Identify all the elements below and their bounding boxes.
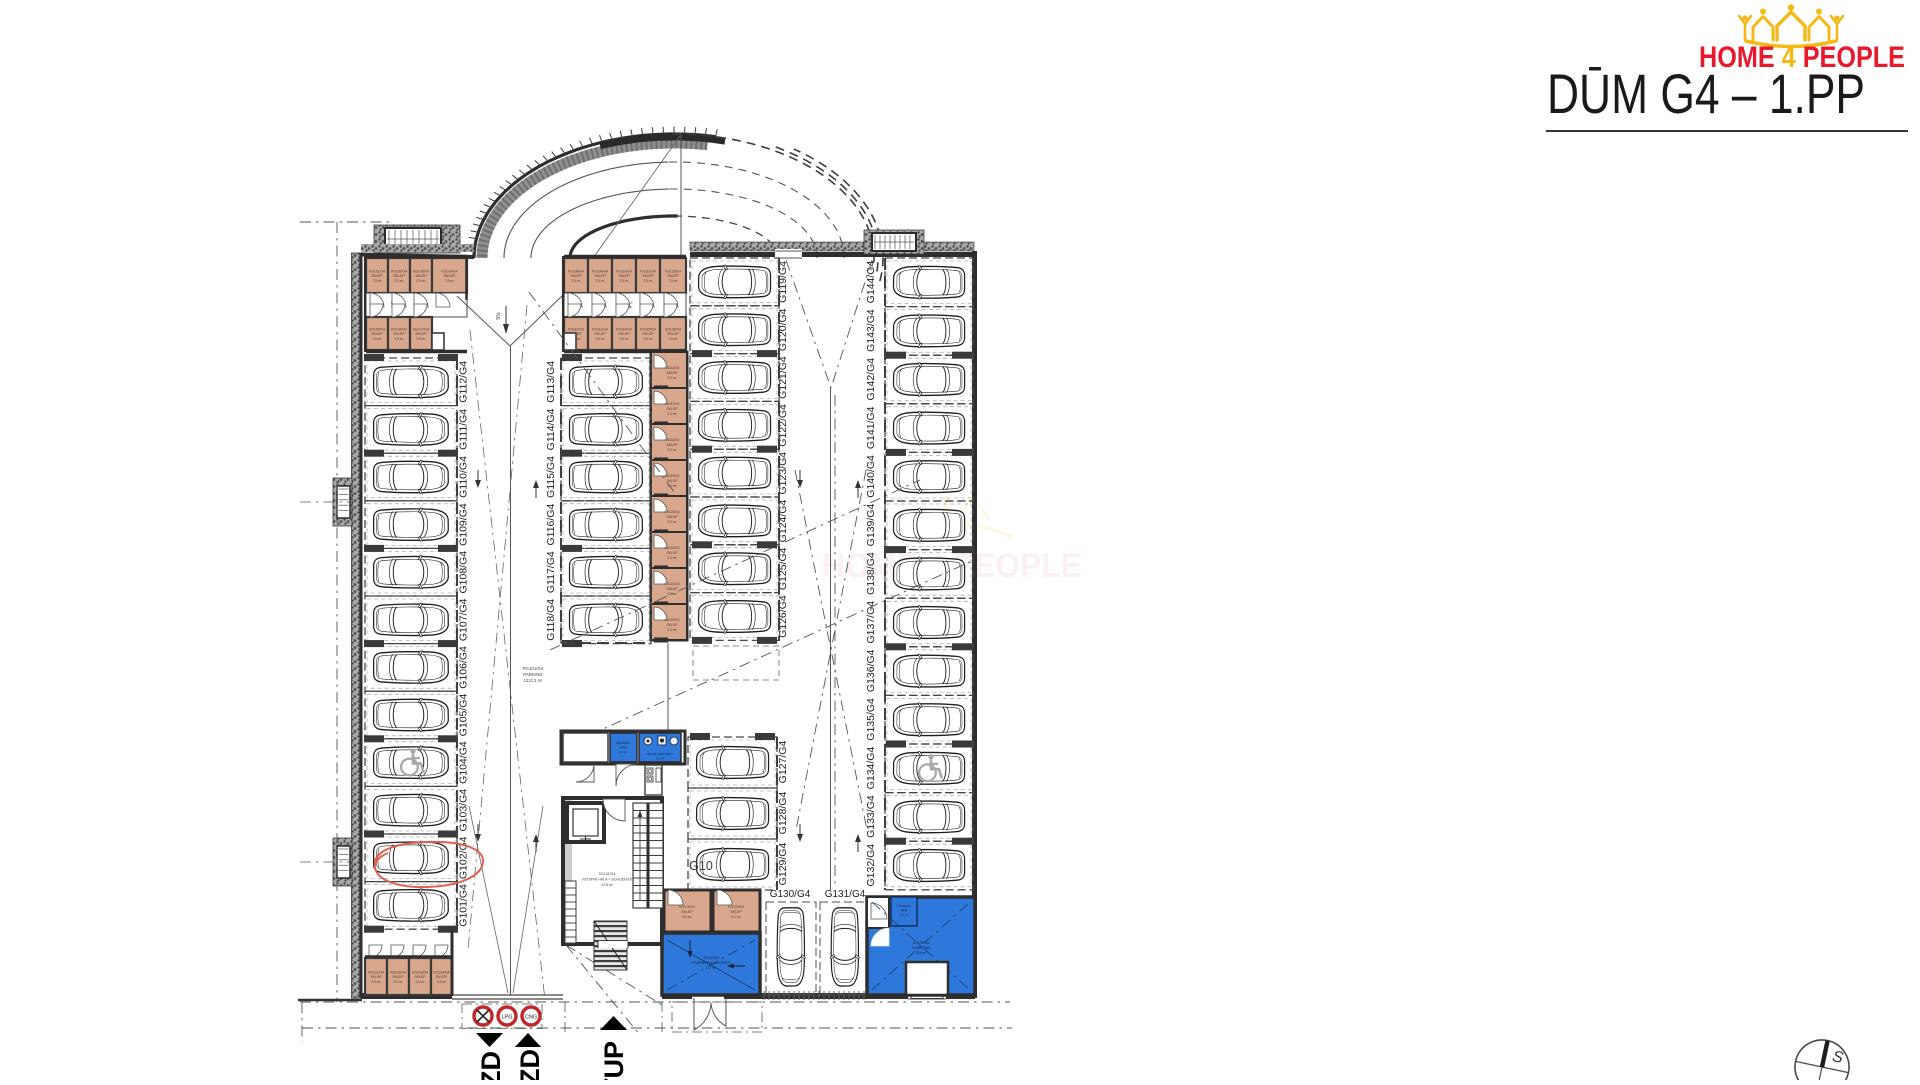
svg-text:VSTUPNÍ HALA + SCHODIŠTĚ: VSTUPNÍ HALA + SCHODIŠTĚ bbox=[582, 877, 633, 882]
svg-text:2.2 m²: 2.2 m² bbox=[667, 520, 676, 524]
svg-text:G141/G4: G141/G4 bbox=[865, 406, 877, 449]
svg-text:G117/G4: G117/G4 bbox=[545, 551, 557, 593]
svg-text:G139/G4: G139/G4 bbox=[865, 504, 877, 547]
svg-text:KG133/G4: KG133/G4 bbox=[412, 971, 428, 975]
svg-text:VÝMĚNÍKOVÁ MÍSTNOST: VÝMĚNÍKOVÁ MÍSTNOST bbox=[691, 960, 732, 965]
svg-text:G107/G4: G107/G4 bbox=[458, 598, 470, 641]
svg-text:SKLEP: SKLEP bbox=[642, 274, 654, 278]
svg-text:G113/G4: G113/G4 bbox=[545, 361, 557, 403]
svg-text:2.5 m²: 2.5 m² bbox=[415, 980, 424, 984]
svg-text:KG115/G4: KG115/G4 bbox=[640, 328, 656, 332]
svg-text:G108/G4: G108/G4 bbox=[458, 551, 470, 594]
svg-text:SKLEP: SKLEP bbox=[642, 332, 654, 336]
svg-text:KG131/G4: KG131/G4 bbox=[368, 971, 384, 975]
svg-text:1212.2 m²: 1212.2 m² bbox=[524, 678, 543, 683]
svg-text:G132/G4: G132/G4 bbox=[865, 844, 877, 887]
svg-text:SKLEP: SKLEP bbox=[667, 407, 679, 411]
svg-text:KG101/G4: KG101/G4 bbox=[369, 270, 385, 274]
svg-text:SKLEP: SKLEP bbox=[393, 332, 405, 336]
svg-text:17.7 m²: 17.7 m² bbox=[706, 966, 717, 970]
svg-text:CNG: CNG bbox=[525, 1015, 537, 1021]
svg-text:G106/G4: G106/G4 bbox=[458, 646, 470, 689]
svg-text:2.2 m²: 2.2 m² bbox=[667, 376, 676, 380]
svg-text:TG102/G4: TG102/G4 bbox=[703, 956, 719, 960]
svg-text:G110/G4: G110/G4 bbox=[458, 456, 470, 498]
svg-text:KG106/G4: KG106/G4 bbox=[391, 328, 407, 332]
svg-text:KG126/G4: KG126/G4 bbox=[665, 328, 681, 332]
svg-text:3.4 m²: 3.4 m² bbox=[619, 750, 628, 754]
svg-text:2.2 m²: 2.2 m² bbox=[667, 448, 676, 452]
svg-text:ÚKLID. MÍSTNOST: ÚKLID. MÍSTNOST bbox=[647, 751, 673, 756]
svg-text:KG125/G4: KG125/G4 bbox=[665, 270, 681, 274]
svg-text:SKLEP: SKLEP bbox=[618, 274, 630, 278]
svg-text:2.2 m²: 2.2 m² bbox=[667, 412, 676, 416]
svg-text:VSTUP: VSTUP bbox=[599, 1041, 629, 1080]
svg-text:2.5 m²: 2.5 m² bbox=[668, 337, 677, 341]
svg-text:G131/G4: G131/G4 bbox=[825, 889, 866, 900]
svg-text:KG114/G4: KG114/G4 bbox=[616, 328, 632, 332]
svg-text:SKLEP: SKLEP bbox=[444, 274, 456, 278]
svg-text:G135/G4: G135/G4 bbox=[865, 698, 877, 741]
svg-text:KOLÁRNA: KOLÁRNA bbox=[912, 946, 930, 950]
svg-text:G133/G4: G133/G4 bbox=[865, 795, 877, 838]
svg-text:2.5 m²: 2.5 m² bbox=[571, 279, 580, 283]
svg-text:KG109/G4: KG109/G4 bbox=[592, 270, 608, 274]
svg-text:G112/G4: G112/G4 bbox=[458, 361, 470, 403]
svg-text:2.5 m²: 2.5 m² bbox=[416, 279, 425, 283]
svg-text:2.5 m²: 2.5 m² bbox=[393, 980, 402, 984]
svg-text:KG104/G4: KG104/G4 bbox=[441, 270, 457, 274]
svg-text:G142/G4: G142/G4 bbox=[865, 358, 877, 401]
svg-text:G111/G4: G111/G4 bbox=[458, 409, 470, 450]
svg-text:SG103/G4: SG103/G4 bbox=[913, 941, 929, 945]
svg-text:UPS: UPS bbox=[620, 746, 628, 750]
svg-text:SKLEP: SKLEP bbox=[730, 910, 742, 914]
svg-text:G105/G4: G105/G4 bbox=[458, 694, 470, 737]
svg-text:2.5 m²: 2.5 m² bbox=[643, 279, 652, 283]
svg-text:SKLEP: SKLEP bbox=[570, 274, 582, 278]
svg-text:5.1 m²: 5.1 m² bbox=[731, 915, 740, 919]
svg-text:KG116/G4: KG116/G4 bbox=[665, 366, 680, 370]
svg-text:5.1 m²: 5.1 m² bbox=[656, 757, 665, 761]
svg-text:KG107/G4: KG107/G4 bbox=[413, 328, 429, 332]
svg-text:ATS: ATS bbox=[901, 909, 908, 913]
svg-text:KG132/G4: KG132/G4 bbox=[390, 971, 406, 975]
svg-text:SKLEP: SKLEP bbox=[393, 274, 405, 278]
svg-text:SKLEP: SKLEP bbox=[370, 975, 382, 979]
svg-text:G129/G4: G129/G4 bbox=[777, 843, 789, 886]
svg-text:G101/G4: G101/G4 bbox=[458, 884, 470, 927]
svg-text:SKLEP: SKLEP bbox=[371, 332, 383, 336]
svg-text:2.5 m²: 2.5 m² bbox=[595, 337, 604, 341]
svg-text:SG101/G4: SG101/G4 bbox=[599, 872, 616, 876]
svg-text:SKLEP: SKLEP bbox=[667, 443, 679, 447]
svg-text:KG110/G4: KG110/G4 bbox=[616, 270, 632, 274]
svg-text:G128/G4: G128/G4 bbox=[777, 792, 789, 835]
svg-text:G115/G4: G115/G4 bbox=[545, 456, 557, 498]
svg-text:2.5 m²: 2.5 m² bbox=[668, 279, 677, 283]
svg-text:PG101/G4: PG101/G4 bbox=[523, 666, 544, 671]
svg-text:G143/G4: G143/G4 bbox=[865, 309, 877, 352]
svg-text:G104/G4: G104/G4 bbox=[458, 741, 470, 784]
svg-text:SKLEP: SKLEP bbox=[371, 274, 383, 278]
svg-text:KG125/G4: KG125/G4 bbox=[728, 905, 744, 909]
svg-text:G144/G4: G144/G4 bbox=[865, 261, 877, 304]
svg-text:KG113/G4: KG113/G4 bbox=[592, 328, 608, 332]
svg-text:KG134/G4: KG134/G4 bbox=[433, 971, 449, 975]
svg-text:SKLEP: SKLEP bbox=[414, 975, 426, 979]
svg-text:2.5 m²: 2.5 m² bbox=[643, 337, 652, 341]
svg-text:SKLEP: SKLEP bbox=[667, 479, 679, 483]
svg-text:SKLEP: SKLEP bbox=[436, 975, 448, 979]
svg-text:KG118/G4: KG118/G4 bbox=[665, 438, 680, 442]
svg-text:2.5 m²: 2.5 m² bbox=[595, 279, 604, 283]
svg-text:KG122/G4: KG122/G4 bbox=[664, 582, 679, 586]
svg-text:5%: 5% bbox=[496, 312, 502, 320]
svg-text:SKLEP: SKLEP bbox=[667, 371, 679, 375]
svg-text:G136/G4: G136/G4 bbox=[865, 649, 877, 692]
svg-text:SKLEP: SKLEP bbox=[667, 332, 679, 336]
svg-text:2.5 m²: 2.5 m² bbox=[371, 980, 380, 984]
svg-text:SKLEP: SKLEP bbox=[667, 274, 679, 278]
svg-text:VÝJEZD: VÝJEZD bbox=[514, 1049, 545, 1080]
svg-text:2.2 m²: 2.2 m² bbox=[667, 628, 676, 632]
svg-text:PARKING: PARKING bbox=[523, 672, 543, 677]
svg-text:G114/G4: G114/G4 bbox=[545, 408, 557, 450]
svg-text:SKLEP: SKLEP bbox=[667, 623, 679, 627]
svg-text:TG101/G4: TG101/G4 bbox=[897, 904, 911, 908]
svg-text:KG124/G4: KG124/G4 bbox=[679, 905, 695, 909]
svg-text:KG103/G4: KG103/G4 bbox=[413, 270, 429, 274]
svg-text:2.5 m²: 2.5 m² bbox=[416, 337, 425, 341]
svg-text:SKLEP: SKLEP bbox=[594, 332, 606, 336]
svg-text:G140/G4: G140/G4 bbox=[865, 455, 877, 498]
svg-text:KG123/G4: KG123/G4 bbox=[664, 618, 679, 622]
svg-text:G130/G4: G130/G4 bbox=[770, 889, 811, 900]
svg-text:KG105/G4: KG105/G4 bbox=[369, 328, 385, 332]
svg-text:LPG: LPG bbox=[501, 1015, 512, 1021]
svg-text:22.8 m²: 22.8 m² bbox=[601, 883, 613, 887]
svg-text:KG112/G4: KG112/G4 bbox=[568, 328, 584, 332]
svg-text:SKLEP: SKLEP bbox=[667, 515, 679, 519]
svg-text:G118/G4: G118/G4 bbox=[545, 599, 557, 641]
svg-text:SKLEP: SKLEP bbox=[667, 587, 679, 591]
svg-text:G102/G4: G102/G4 bbox=[458, 836, 470, 879]
svg-text:SKLEP: SKLEP bbox=[681, 910, 693, 914]
svg-text:SKLEP: SKLEP bbox=[594, 274, 606, 278]
svg-text:2.5 m²: 2.5 m² bbox=[372, 279, 381, 283]
svg-text:2.2 m²: 2.2 m² bbox=[667, 556, 676, 560]
svg-text:6.1 m²: 6.1 m² bbox=[900, 913, 909, 917]
svg-text:G138/G4: G138/G4 bbox=[865, 552, 877, 595]
svg-text:KG102/G4: KG102/G4 bbox=[391, 270, 407, 274]
svg-text:VJEZD: VJEZD bbox=[476, 1051, 506, 1080]
svg-text:TG103/G4: TG103/G4 bbox=[616, 741, 630, 745]
svg-text:G103/G4: G103/G4 bbox=[458, 789, 470, 832]
svg-text:25.6 m²: 25.6 m² bbox=[916, 951, 927, 955]
svg-text:5.2 m²: 5.2 m² bbox=[682, 915, 691, 919]
svg-text:KG117/G4: KG117/G4 bbox=[665, 402, 680, 406]
svg-text:KG121/G4: KG121/G4 bbox=[664, 546, 679, 550]
svg-text:SKLEP: SKLEP bbox=[618, 332, 630, 336]
svg-text:KG119/G4: KG119/G4 bbox=[665, 474, 680, 478]
svg-text:G134/G4: G134/G4 bbox=[865, 747, 877, 790]
svg-text:SKLEP: SKLEP bbox=[415, 274, 427, 278]
svg-text:SKLEP: SKLEP bbox=[415, 332, 427, 336]
svg-text:2.5 m²: 2.5 m² bbox=[445, 279, 454, 283]
svg-text:KG111/G4: KG111/G4 bbox=[640, 270, 656, 274]
svg-text:G10: G10 bbox=[689, 859, 713, 873]
svg-text:2.5 m²: 2.5 m² bbox=[372, 337, 381, 341]
svg-text:2.5 m²: 2.5 m² bbox=[437, 980, 446, 984]
svg-text:2.5 m²: 2.5 m² bbox=[394, 279, 403, 283]
svg-text:2.5 m²: 2.5 m² bbox=[619, 337, 628, 341]
svg-text:KG108/G4: KG108/G4 bbox=[568, 270, 584, 274]
svg-text:SKLEP: SKLEP bbox=[392, 975, 404, 979]
svg-text:G127/G4: G127/G4 bbox=[777, 741, 789, 784]
svg-text:DŪM G4 – 1.PP: DŪM G4 – 1.PP bbox=[1547, 62, 1865, 125]
svg-text:G116/G4: G116/G4 bbox=[545, 504, 557, 546]
svg-text:KG120/G4: KG120/G4 bbox=[664, 510, 679, 514]
svg-text:SKLEP: SKLEP bbox=[667, 551, 679, 555]
svg-text:G109/G4: G109/G4 bbox=[458, 503, 470, 546]
svg-text:2.5 m²: 2.5 m² bbox=[394, 337, 403, 341]
svg-text:2.5 m²: 2.5 m² bbox=[619, 279, 628, 283]
